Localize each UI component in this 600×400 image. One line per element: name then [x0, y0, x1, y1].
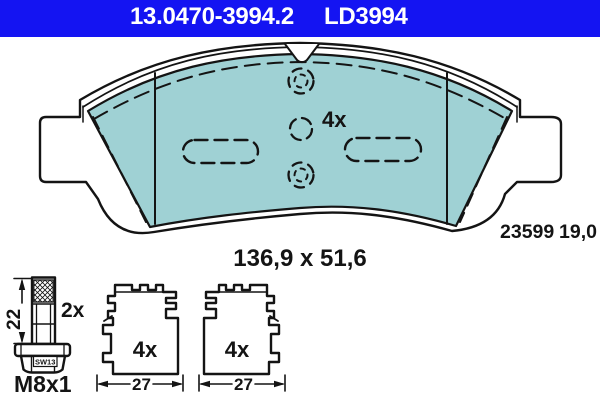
guide-bolt-drawing: SW13 22 2x M8x1	[4, 278, 85, 398]
pad-size-label: 136,9 x 51,6	[233, 245, 366, 272]
type-code: LD3994	[324, 3, 408, 31]
clip-left-width-dimension: 27	[97, 375, 183, 394]
bolt-washer	[15, 344, 70, 356]
brake-pad-drawing: 4x 136,9 x 51,6 23599 19,0	[40, 43, 597, 272]
bolt-length-dimension: 22	[4, 279, 31, 344]
pad-quantity-label: 4x	[322, 107, 347, 132]
spring-clip-right-drawing: 4x 27	[199, 285, 285, 394]
bolt-thread-label: M8x1	[14, 371, 72, 397]
bolt-quantity-label: 2x	[61, 299, 85, 322]
bolt-thread-section	[34, 280, 53, 302]
diagram-page: 4x 136,9 x 51,6 23599 19,0 SW13 22	[0, 0, 600, 400]
clip-left-width-label: 27	[132, 375, 151, 394]
wva-number-label: 23599	[500, 221, 554, 243]
clip-right-quantity-label: 4x	[225, 337, 250, 362]
clip-left-quantity-label: 4x	[133, 337, 158, 362]
technical-drawing: 4x 136,9 x 51,6 23599 19,0 SW13 22	[0, 0, 600, 400]
bolt-length-label: 22	[4, 309, 25, 330]
hex-size-label: SW13	[35, 357, 55, 366]
spring-clip-left-drawing: 4x 27	[97, 285, 183, 394]
clip-right-width-label: 27	[234, 375, 253, 394]
clip-right-width-dimension: 27	[199, 375, 285, 394]
pad-thickness-label: 19,0	[559, 221, 597, 243]
header-bar: 13.0470-3994.2 LD3994	[0, 0, 600, 37]
part-number: 13.0470-3994.2	[130, 3, 294, 31]
